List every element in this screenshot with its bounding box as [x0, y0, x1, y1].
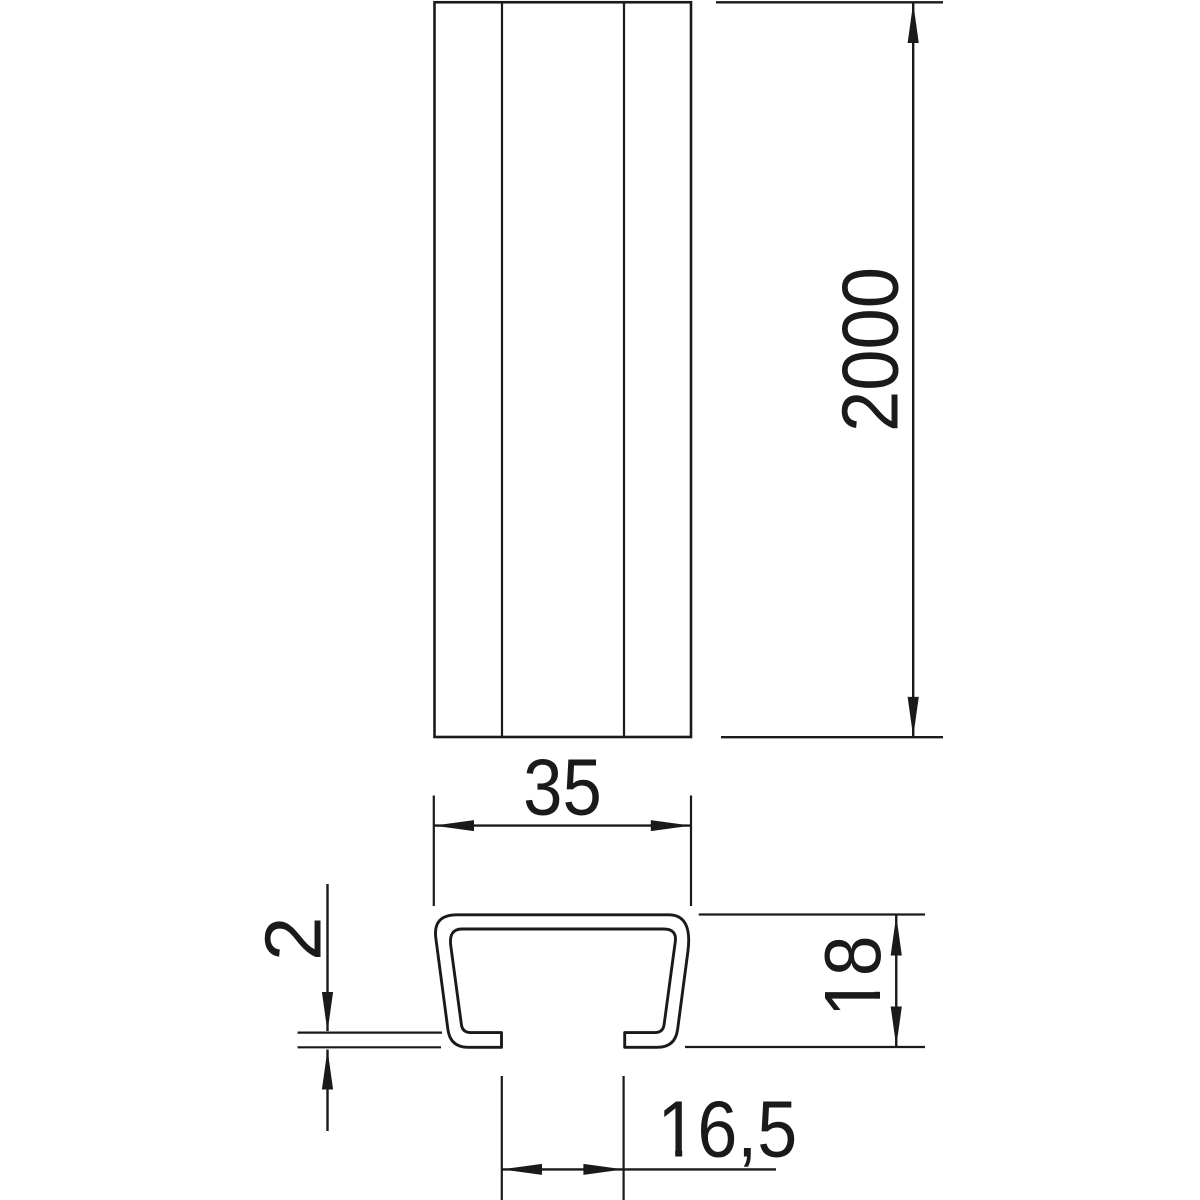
svg-text:2: 2 — [249, 917, 338, 962]
svg-text:18: 18 — [808, 935, 898, 1017]
svg-text:16,5: 16,5 — [657, 1085, 797, 1174]
svg-text:2000: 2000 — [826, 267, 915, 432]
svg-text:35: 35 — [523, 742, 602, 831]
